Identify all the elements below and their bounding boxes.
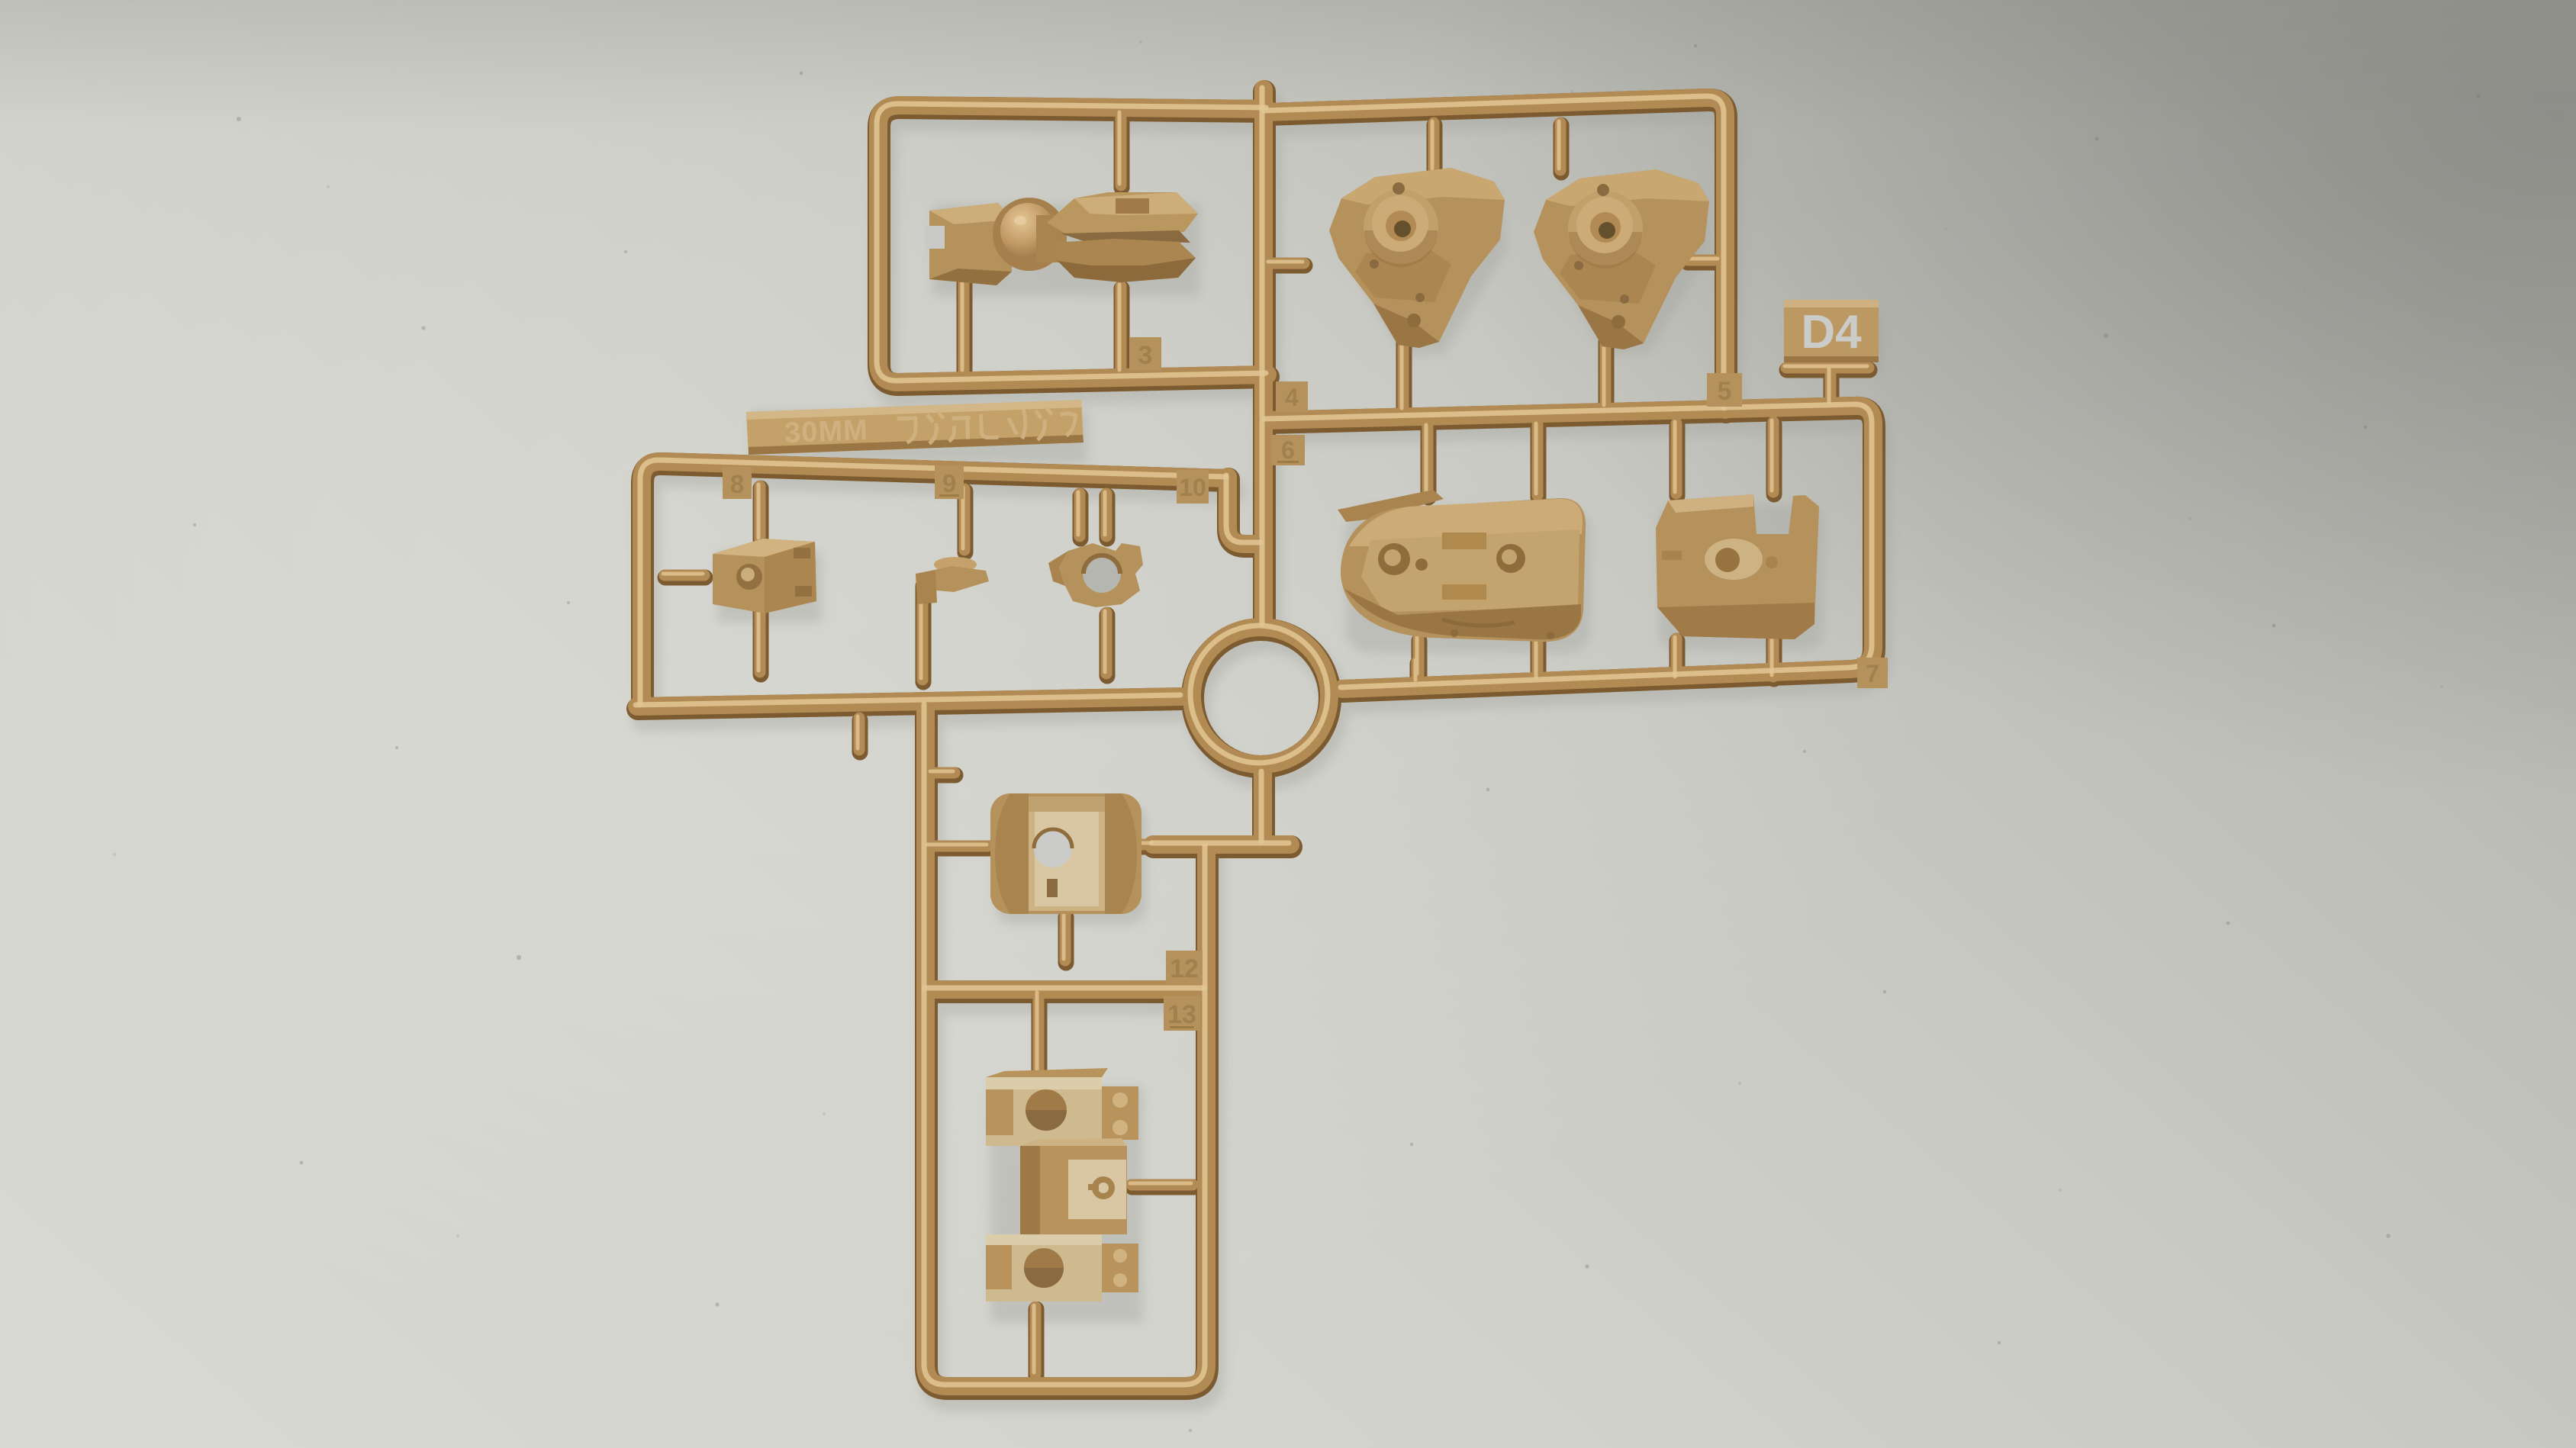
svg-text:8: 8 bbox=[730, 470, 744, 498]
svg-text:D4: D4 bbox=[1801, 306, 1862, 359]
svg-text:3: 3 bbox=[1138, 341, 1153, 370]
svg-text:30MM: 30MM bbox=[784, 414, 868, 449]
svg-text:12: 12 bbox=[1170, 954, 1199, 983]
svg-text:5: 5 bbox=[1718, 377, 1732, 406]
svg-text:13: 13 bbox=[1167, 1000, 1196, 1029]
svg-text:10: 10 bbox=[1179, 474, 1206, 501]
svg-text:7: 7 bbox=[1866, 660, 1879, 687]
svg-text:6: 6 bbox=[1281, 436, 1295, 464]
svg-text:4: 4 bbox=[1285, 384, 1299, 411]
svg-text:9: 9 bbox=[942, 469, 956, 497]
